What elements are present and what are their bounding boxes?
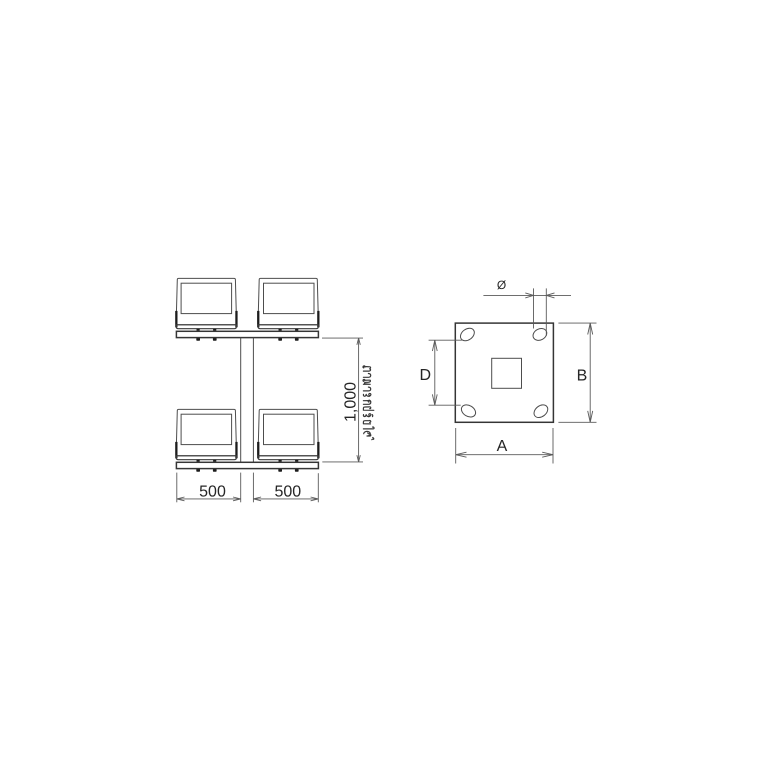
svg-text:500: 500: [199, 483, 226, 500]
svg-text:D: D: [420, 367, 432, 384]
svg-text:500: 500: [274, 483, 301, 500]
svg-text:Ø: Ø: [497, 278, 506, 292]
svg-text:A: A: [497, 438, 508, 455]
svg-text:1,000: 1,000: [343, 382, 360, 422]
svg-text:B: B: [577, 368, 588, 385]
